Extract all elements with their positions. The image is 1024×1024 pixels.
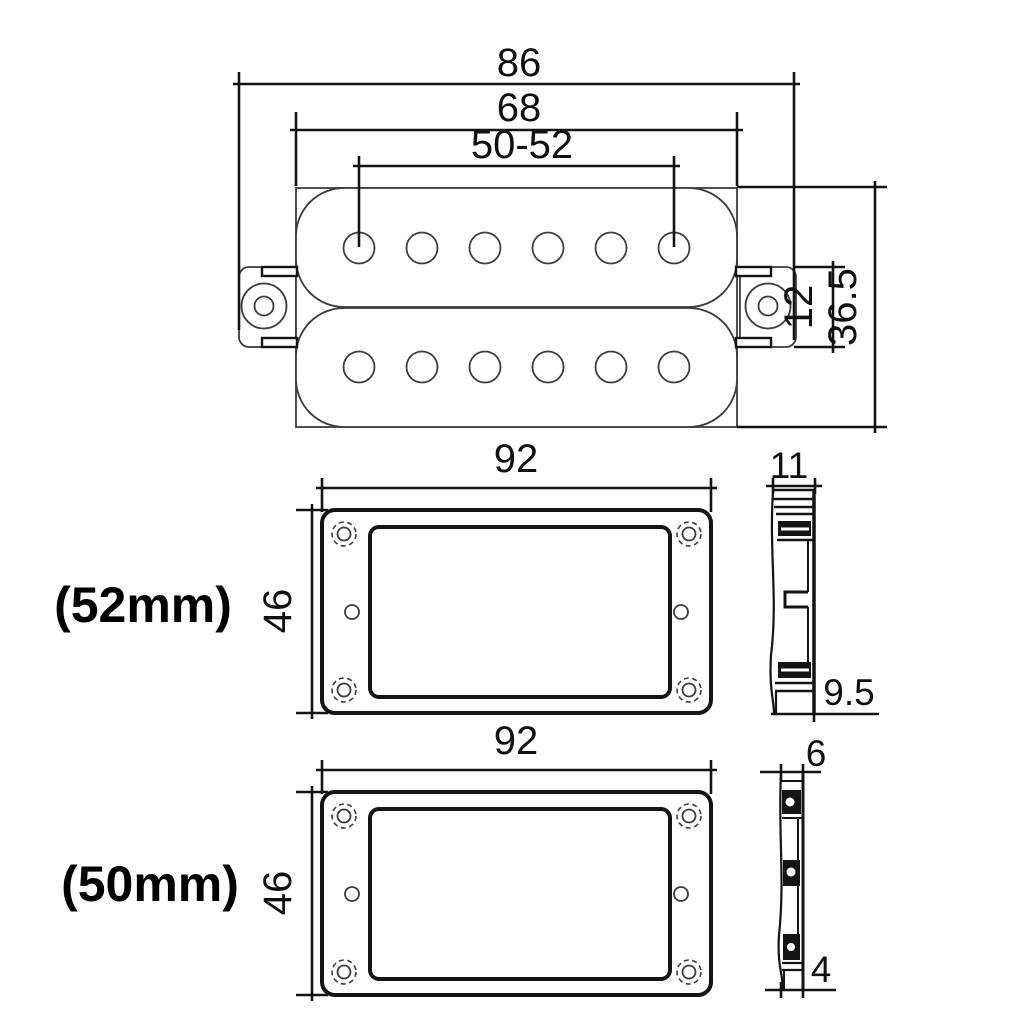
ring-50-front-view: 92 46 [256, 719, 717, 1001]
dim-value: 86 [497, 41, 542, 85]
dim-value: 92 [494, 437, 539, 481]
technical-drawing-canvas: 86 68 50-52 12 36.5 [0, 0, 1024, 1024]
dim-ring-height-46: 46 [256, 504, 328, 719]
profile-slot [787, 943, 795, 951]
profile-slot [787, 868, 796, 877]
label-50mm: (50mm) [61, 856, 239, 912]
ring-pickup-opening [370, 809, 670, 979]
pole-piece [533, 352, 564, 383]
pole-piece [344, 352, 375, 383]
ring-pickup-opening [370, 527, 670, 697]
dim-ring-height-46: 46 [256, 786, 328, 1001]
dim-value: 46 [256, 871, 300, 916]
profile-slot [786, 798, 795, 807]
pole-piece [596, 352, 627, 383]
dim-value: 11 [770, 445, 808, 486]
dim-value: 36.5 [821, 268, 865, 346]
mounting-ear-left [239, 267, 296, 347]
profile-foot-rungs [775, 683, 814, 691]
ear-body [239, 267, 296, 347]
dim-value: 6 [806, 733, 827, 774]
ear-tab-notch [736, 267, 771, 276]
humbucker-top-view: 86 68 50-52 12 36.5 [233, 41, 887, 433]
ear-tab-notch [736, 338, 771, 347]
dim-side-bottom-9-5: 9.5 [771, 672, 879, 722]
profile-left-edge [771, 492, 774, 714]
label-52mm: (52mm) [54, 577, 232, 633]
drawing-page: 86 68 50-52 12 36.5 [0, 0, 1024, 1024]
ring-52-front-view: 92 46 [256, 437, 717, 719]
ring-50-side-view: 6 4 [760, 733, 836, 998]
dim-side-top-6: 6 [760, 733, 826, 780]
ear-tab-notch [262, 267, 297, 276]
dim-value: 50-52 [471, 123, 573, 167]
profile-top-flange [773, 490, 814, 514]
ring-52-side-view: 11 9.5 [766, 445, 879, 722]
dim-value: 9.5 [823, 672, 874, 713]
pole-piece [533, 233, 564, 264]
dim-ring-width-92: 92 [316, 437, 717, 512]
ear-tab-notch [262, 338, 297, 347]
dim-side-top-11: 11 [766, 445, 822, 494]
dim-value: 12 [777, 285, 821, 330]
pole-piece [596, 233, 627, 264]
dim-value: 92 [494, 719, 539, 763]
dim-side-bottom-4: 4 [765, 949, 836, 998]
pole-piece [407, 233, 438, 264]
dim-value: 46 [256, 589, 300, 634]
pole-piece [407, 352, 438, 383]
profile-mid-ledge [785, 592, 808, 607]
dim-ring-width-92: 92 [316, 719, 717, 794]
pole-piece [659, 352, 690, 383]
pole-piece [470, 352, 501, 383]
pole-piece [470, 233, 501, 264]
ring-side-profile [779, 774, 803, 990]
ring-side-profile [771, 490, 814, 714]
profile-foot-rungs [782, 963, 803, 970]
dim-value: 4 [811, 949, 832, 990]
